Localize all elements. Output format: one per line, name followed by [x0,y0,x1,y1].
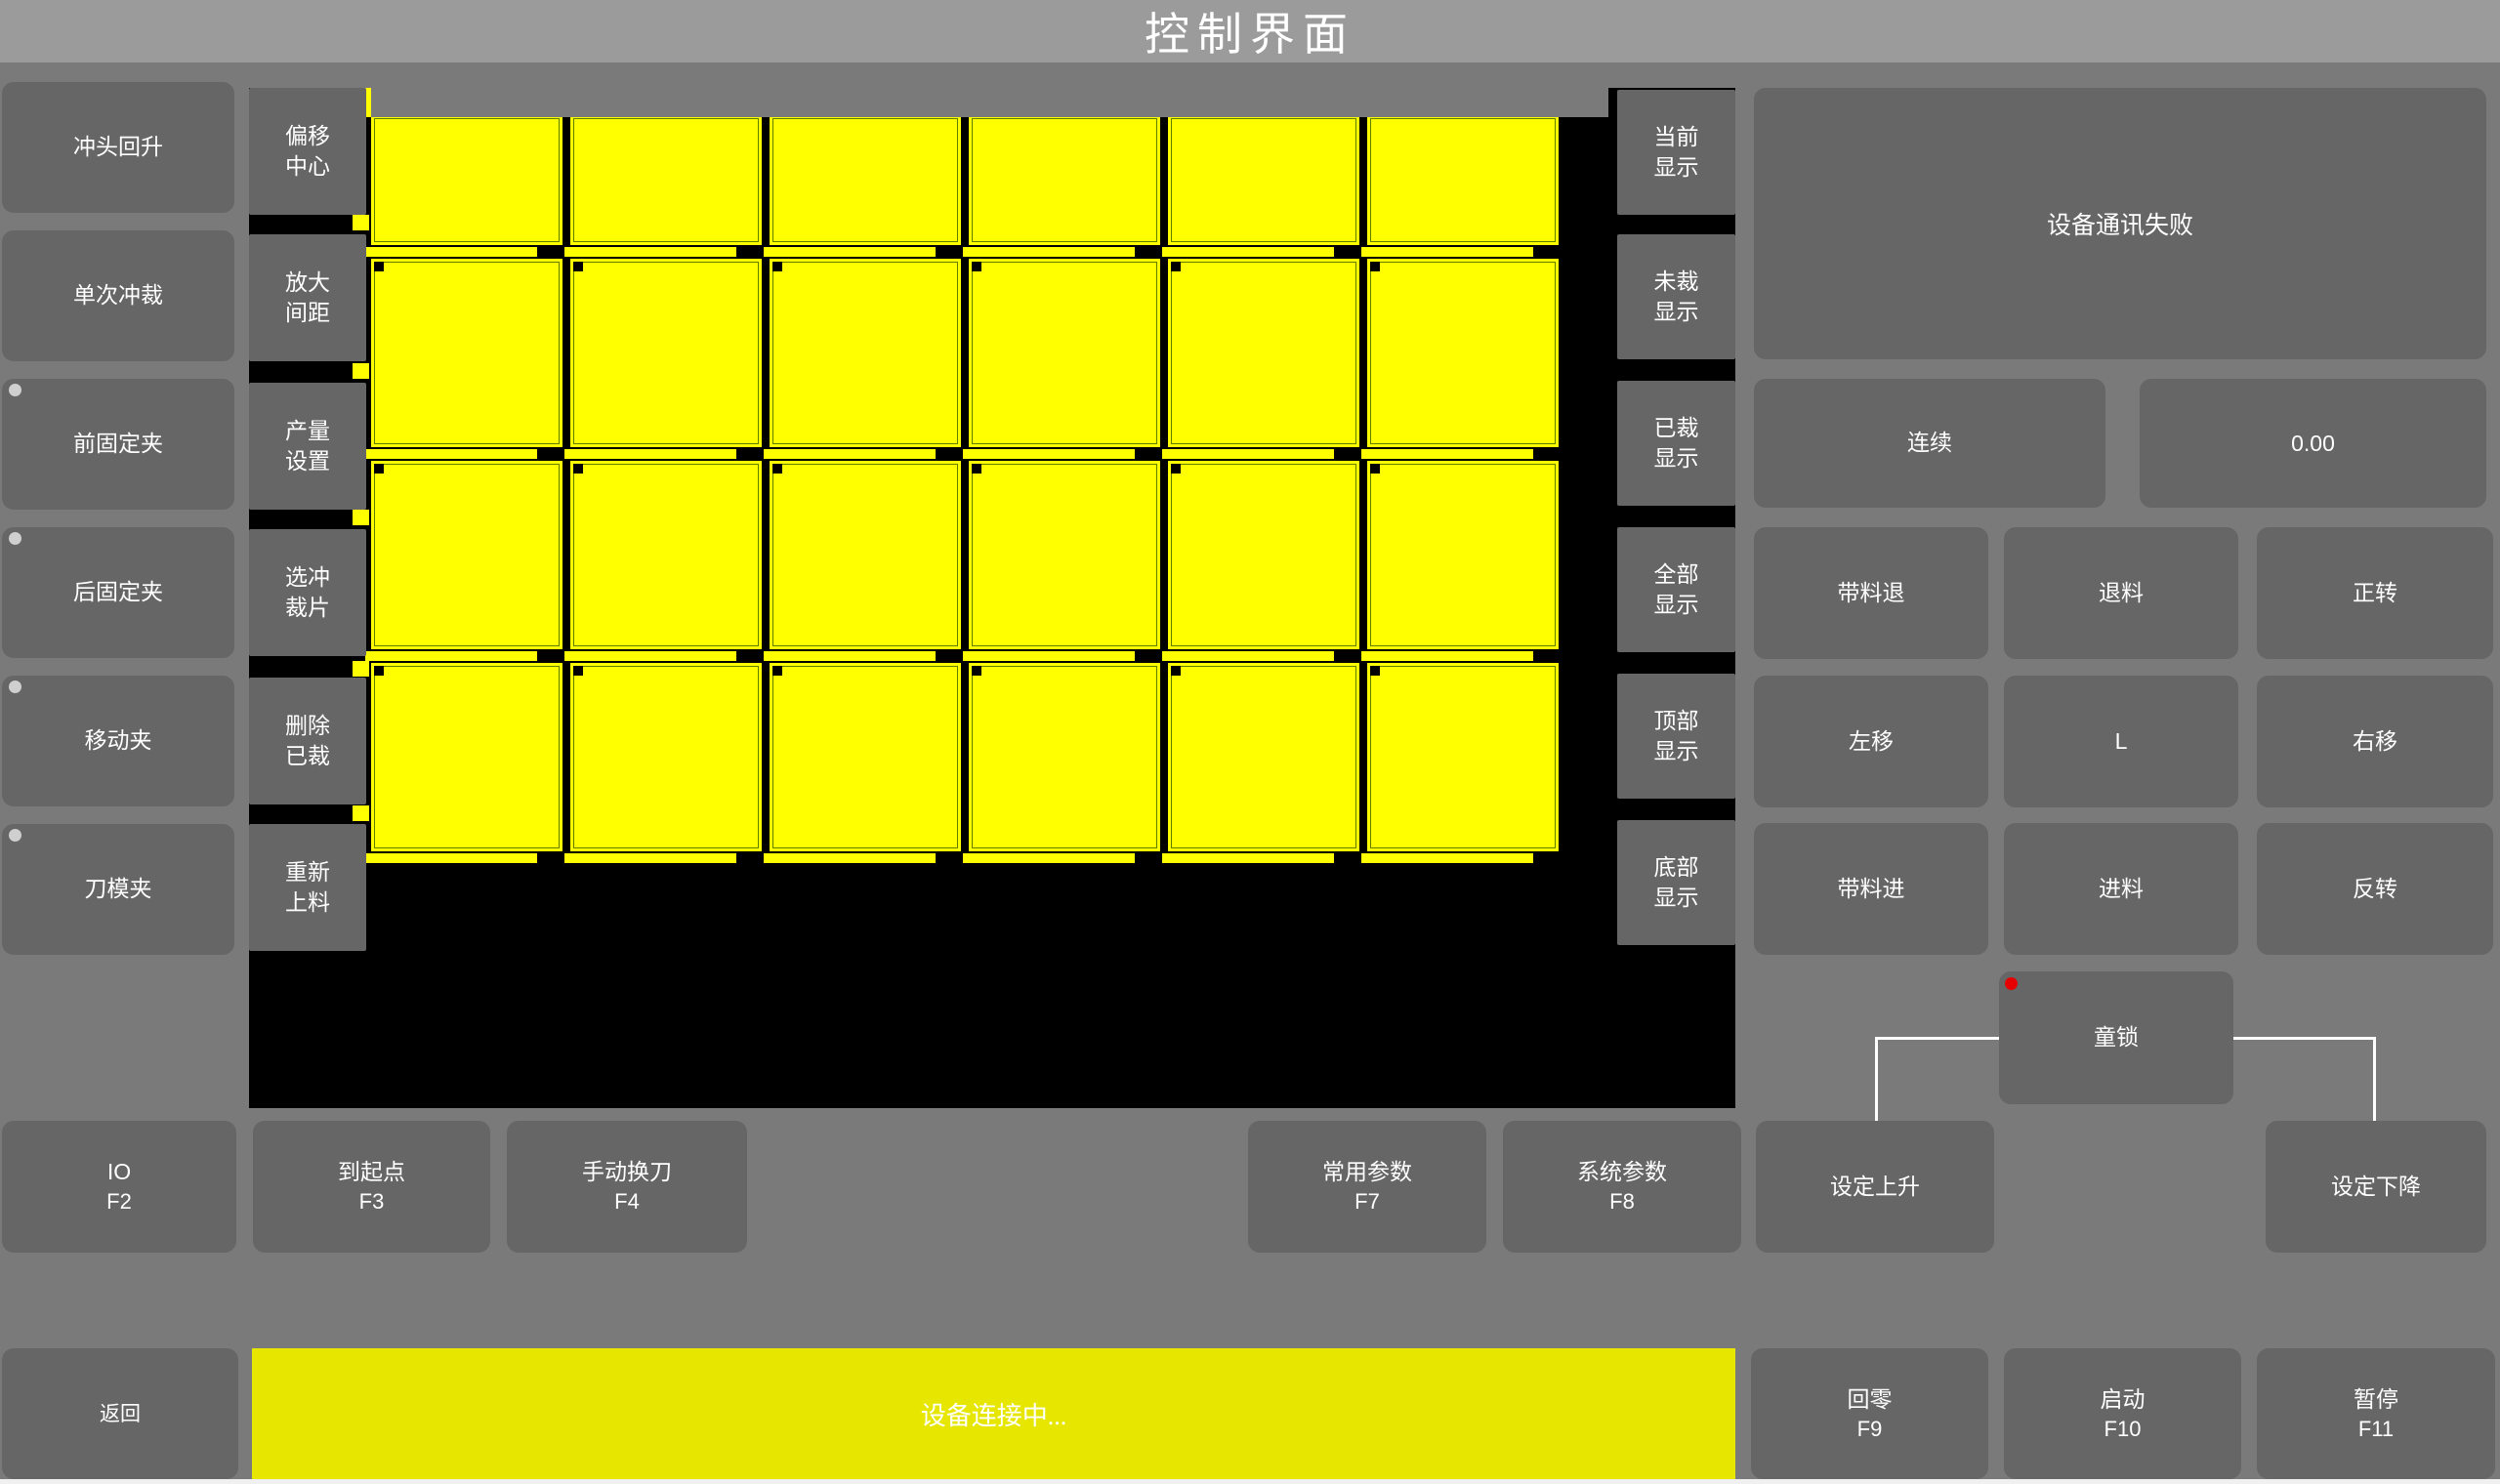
piece-tab-mark [1533,851,1546,865]
child-lock-button[interactable]: 童锁 [1999,971,2233,1104]
cut-piece[interactable] [371,259,562,447]
back-button[interactable]: 返回 [2,1348,238,1479]
piece-tab [963,651,1135,661]
moving-clamp-button[interactable]: 移动夹 [2,676,234,806]
piece-corner-mark [1171,262,1181,271]
reverse-rotate-button[interactable]: 反转 [2257,823,2493,955]
piece-tab [1162,651,1334,661]
piece-tab-mark [537,447,550,461]
link-line-left [1875,1037,1878,1121]
strip-forward-button[interactable]: 带料进 [1754,823,1988,955]
piece-tab-mark [1334,245,1347,259]
single-punch-button[interactable]: 单次冲裁 [2,230,234,361]
cut-piece[interactable] [1367,663,1559,851]
show-cut-button[interactable]: 已裁 显示 [1617,381,1735,506]
piece-tab-mark [1334,851,1347,865]
punch-return-button[interactable]: 冲头回升 [2,82,234,213]
piece-corner-mark [972,262,981,271]
piece-tab-mark [1334,447,1347,461]
common-params-f7-button[interactable]: 常用参数F7 [1248,1121,1486,1253]
show-current-button[interactable]: 当前 显示 [1617,90,1735,215]
reload-material-button[interactable]: 重新 上料 [249,824,366,951]
piece-corner-mark [374,464,384,474]
start-f10-button[interactable]: 启动F10 [2004,1348,2241,1479]
piece-tab-mark [537,649,550,663]
strip-back-button[interactable]: 带料退 [1754,527,1988,659]
cut-piece[interactable] [969,461,1160,649]
moving-clamp-indicator [9,680,21,693]
cut-piece[interactable] [770,115,961,245]
piece-tab-mark [736,245,749,259]
cut-piece[interactable] [770,461,961,649]
enlarge-spacing-button[interactable]: 放大 间距 [249,234,366,361]
feed-button[interactable]: 进料 [2004,823,2238,955]
piece-corner-mark [972,666,981,676]
piece-tab [1361,651,1533,661]
piece-tab [963,449,1135,459]
cut-piece[interactable] [371,115,562,245]
piece-tab-mark [936,447,948,461]
canvas-notch [353,805,369,821]
delete-cut-button[interactable]: 删除 已裁 [249,678,366,804]
piece-tab-mark [537,851,550,865]
to-origin-f3-button[interactable]: 到起点F3 [253,1121,490,1253]
canvas-notch [353,510,369,525]
unload-button[interactable]: 退料 [2004,527,2238,659]
piece-tab [564,651,736,661]
l-button[interactable]: L [2004,676,2238,807]
select-piece-button[interactable]: 选冲 裁片 [249,529,366,656]
piece-corner-mark [1370,666,1380,676]
piece-tab-mark [1334,649,1347,663]
piece-corner-mark [972,464,981,474]
piece-tab [564,853,736,863]
cut-piece[interactable] [969,663,1160,851]
yield-setting-button[interactable]: 产量 设置 [249,383,366,510]
canvas-notch [353,661,369,677]
piece-corner-mark [573,262,583,271]
piece-tab-mark [936,851,948,865]
cut-piece[interactable] [570,259,762,447]
piece-tab [764,651,936,661]
status-bar: 设备连接中... [252,1348,1735,1479]
cut-piece[interactable] [969,115,1160,245]
cut-piece[interactable] [770,259,961,447]
cut-piece[interactable] [1168,663,1359,851]
piece-tab [1361,449,1533,459]
piece-tab-mark [736,649,749,663]
piece-tab-mark [936,245,948,259]
piece-tab-mark [736,447,749,461]
piece-corner-mark [1171,666,1181,676]
rear-clamp-button[interactable]: 后固定夹 [2,527,234,658]
move-left-button[interactable]: 左移 [1754,676,1988,807]
title-bar: 控制界面 [0,0,2500,62]
piece-corner-mark [772,666,782,676]
io-f2-button[interactable]: IOF2 [2,1121,236,1253]
comm-status-panel: 设备通讯失败 [1754,88,2486,359]
cut-piece[interactable] [1367,461,1559,649]
piece-corner-mark [1171,464,1181,474]
piece-tab [963,853,1135,863]
piece-corner-mark [573,464,583,474]
cut-piece[interactable] [570,663,762,851]
child-lock-indicator [2005,977,2018,990]
cut-piece[interactable] [1367,259,1559,447]
show-top-button[interactable]: 顶部 显示 [1617,674,1735,799]
piece-tab [1361,247,1533,257]
piece-tab [1162,853,1334,863]
forward-rotate-button[interactable]: 正转 [2257,527,2493,659]
canvas-notch [353,363,369,379]
piece-corner-mark [374,666,384,676]
cut-piece[interactable] [1168,115,1359,245]
piece-corner-mark [772,262,782,271]
show-uncut-button[interactable]: 未裁 显示 [1617,234,1735,359]
cut-piece[interactable] [1367,115,1559,245]
piece-tab-mark [1533,245,1546,259]
piece-tab [764,853,936,863]
piece-tab-mark [1135,851,1147,865]
pause-f11-button[interactable]: 暂停F11 [2257,1348,2495,1479]
piece-tab-mark [1135,245,1147,259]
show-all-button[interactable]: 全部 显示 [1617,527,1735,652]
cut-piece[interactable] [770,663,961,851]
cut-piece[interactable] [371,663,562,851]
front-clamp-button[interactable]: 前固定夹 [2,379,234,510]
offset-center-button[interactable]: 偏移 中心 [249,88,366,215]
piece-tab [963,247,1135,257]
control-interface: 控制界面 冲头回升 单次冲裁 前固定夹 后固定夹 移动夹 刀模夹 偏移 中心 放… [0,0,2500,1484]
piece-tab-mark [1135,649,1147,663]
canvas-notch [353,215,369,230]
piece-tab [1361,853,1533,863]
cut-piece[interactable] [570,461,762,649]
set-rise-button[interactable]: 设定上升 [1756,1121,1994,1253]
piece-corner-mark [1370,464,1380,474]
piece-tab [564,449,736,459]
nesting-canvas[interactable] [249,88,1735,1108]
piece-tab [365,853,537,863]
cut-piece[interactable] [1168,461,1359,649]
piece-tab-mark [1533,447,1546,461]
piece-tab [365,247,537,257]
piece-tab [764,449,936,459]
piece-corner-mark [772,464,782,474]
piece-tab-mark [537,245,550,259]
piece-tab-mark [1135,447,1147,461]
piece-tab-mark [736,851,749,865]
cut-piece[interactable] [1168,259,1359,447]
piece-tab [1162,449,1334,459]
cut-piece[interactable] [371,461,562,649]
rear-clamp-indicator [9,532,21,545]
bottom-edge-strip [0,1479,2500,1484]
die-clamp-indicator [9,829,21,842]
show-bottom-button[interactable]: 底部 显示 [1617,820,1735,945]
canvas-top-band [369,88,1608,117]
system-params-f8-button[interactable]: 系统参数F8 [1503,1121,1741,1253]
home-f9-button[interactable]: 回零F9 [1751,1348,1988,1479]
page-title: 控制界面 [1145,0,1355,63]
continuous-mode-button[interactable]: 连续 [1754,379,2105,508]
manual-tool-change-f4-button[interactable]: 手动换刀F4 [507,1121,747,1253]
link-line-right [2373,1037,2376,1121]
cut-piece[interactable] [570,115,762,245]
piece-tab [365,449,537,459]
piece-tab-mark [936,649,948,663]
piece-tab [564,247,736,257]
value-display: 0.00 [2140,379,2486,508]
piece-corner-mark [1370,262,1380,271]
piece-tab [764,247,936,257]
piece-tab [365,651,537,661]
piece-corner-mark [374,262,384,271]
front-clamp-indicator [9,384,21,396]
move-right-button[interactable]: 右移 [2257,676,2493,807]
piece-tab [1162,247,1334,257]
piece-tab-mark [1533,649,1546,663]
die-clamp-button[interactable]: 刀模夹 [2,824,234,955]
cut-piece[interactable] [969,259,1160,447]
piece-corner-mark [573,666,583,676]
set-fall-button[interactable]: 设定下降 [2266,1121,2486,1253]
